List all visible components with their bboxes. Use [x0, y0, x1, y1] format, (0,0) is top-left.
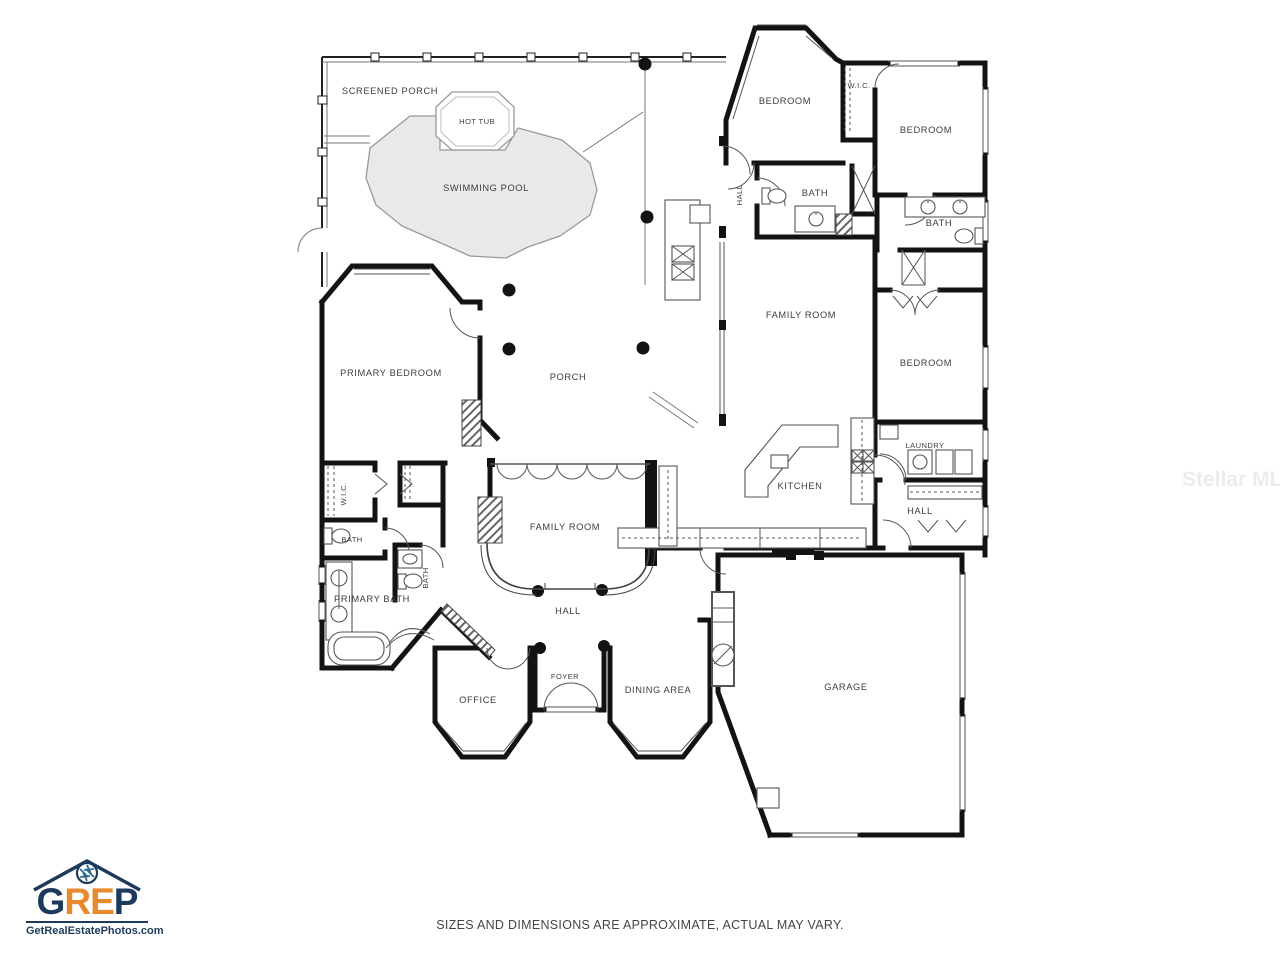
room-label-screened-porch: SCREENED PORCH	[342, 86, 438, 96]
room-label-primary-bath: PRIMARY BATH	[334, 594, 410, 604]
room-label-wic-left: W.I.C.	[339, 482, 348, 505]
room-label-family-room-center: FAMILY ROOM	[530, 522, 600, 532]
room-label-swimming-pool: SWIMMING POOL	[443, 183, 529, 193]
room-label-dining-area: DINING AREA	[625, 685, 692, 695]
room-label-foyer: FOYER	[551, 672, 579, 681]
family-room-curved-wall	[481, 543, 655, 595]
room-label-family-room-right: FAMILY ROOM	[766, 310, 836, 320]
room-label-bedroom-right: BEDROOM	[900, 358, 952, 368]
logo-letter-p: P	[114, 885, 138, 918]
room-label-hall-bottom: HALL	[555, 606, 581, 616]
floor-plan-drawing: SCREENED PORCH HOT TUB SWIMMING POOL BED…	[0, 0, 1280, 960]
floor-plan-page: SCREENED PORCH HOT TUB SWIMMING POOL BED…	[0, 0, 1280, 960]
family-room-arches	[490, 464, 650, 479]
room-label-laundry: LAUNDRY	[906, 441, 945, 450]
room-label-hall-top: HALL	[735, 185, 744, 206]
room-label-bedroom-top-right: BEDROOM	[900, 125, 952, 135]
room-label-hall-right: HALL	[907, 506, 933, 516]
logo-letter-r: R	[64, 885, 90, 918]
logo-letters: G R E P	[26, 885, 148, 918]
room-label-bath-center: BATH	[421, 567, 430, 588]
logo-letter-e: E	[90, 885, 114, 918]
room-label-wic-top: W.I.C.	[847, 81, 870, 90]
camera-aperture-icon	[77, 863, 97, 883]
room-label-bath-right: BATH	[926, 218, 953, 228]
room-label-garage: GARAGE	[824, 682, 867, 692]
room-label-kitchen: KITCHEN	[777, 481, 822, 491]
disclaimer-text: SIZES AND DIMENSIONS ARE APPROXIMATE, AC…	[0, 918, 1280, 932]
room-label-hot-tub: HOT TUB	[459, 117, 495, 126]
stellar-mls-watermark: Stellar MLS	[1182, 468, 1280, 492]
room-label-bath-top: BATH	[802, 188, 829, 198]
room-label-porch: PORCH	[550, 372, 587, 382]
room-label-primary-bedroom: PRIMARY BEDROOM	[340, 368, 442, 378]
logo-letter-g: G	[37, 885, 65, 918]
room-label-bath-left: BATH	[341, 535, 362, 544]
room-label-bedroom-top: BEDROOM	[759, 96, 811, 106]
room-label-office: OFFICE	[459, 695, 497, 705]
